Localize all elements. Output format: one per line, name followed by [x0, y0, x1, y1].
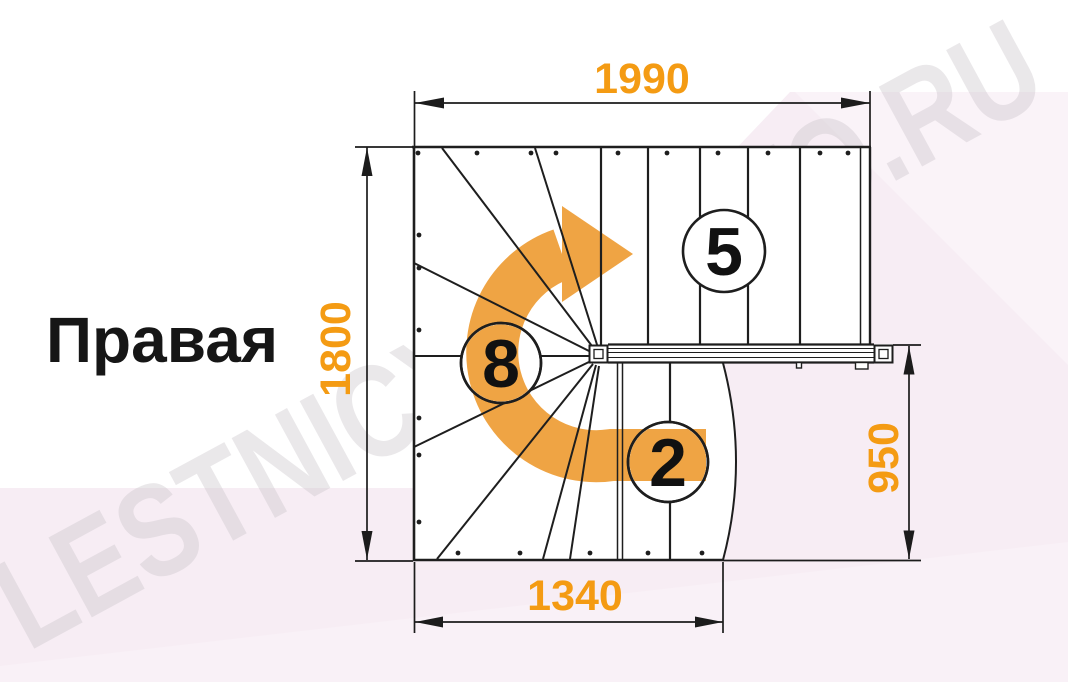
step-count-upper-flight: 5 [683, 210, 765, 292]
lower-flight-count: 2 [649, 425, 687, 501]
upper-flight-count: 5 [705, 214, 743, 290]
dimension-bottom-value: 1340 [527, 572, 623, 620]
staircase-plan-diagram: LESTNICYPROSTO.RU [0, 0, 1068, 682]
dimension-right-value: 950 [860, 422, 908, 494]
baluster-mark [856, 363, 869, 370]
dimension-left-value: 1800 [312, 301, 360, 397]
page-title: Правая [46, 304, 278, 376]
winders-count: 8 [482, 326, 520, 402]
baluster-mark [797, 363, 802, 369]
dimension-top-value: 1990 [594, 55, 690, 103]
plan-svg: LESTNICYPROSTO.RU [0, 0, 1068, 682]
